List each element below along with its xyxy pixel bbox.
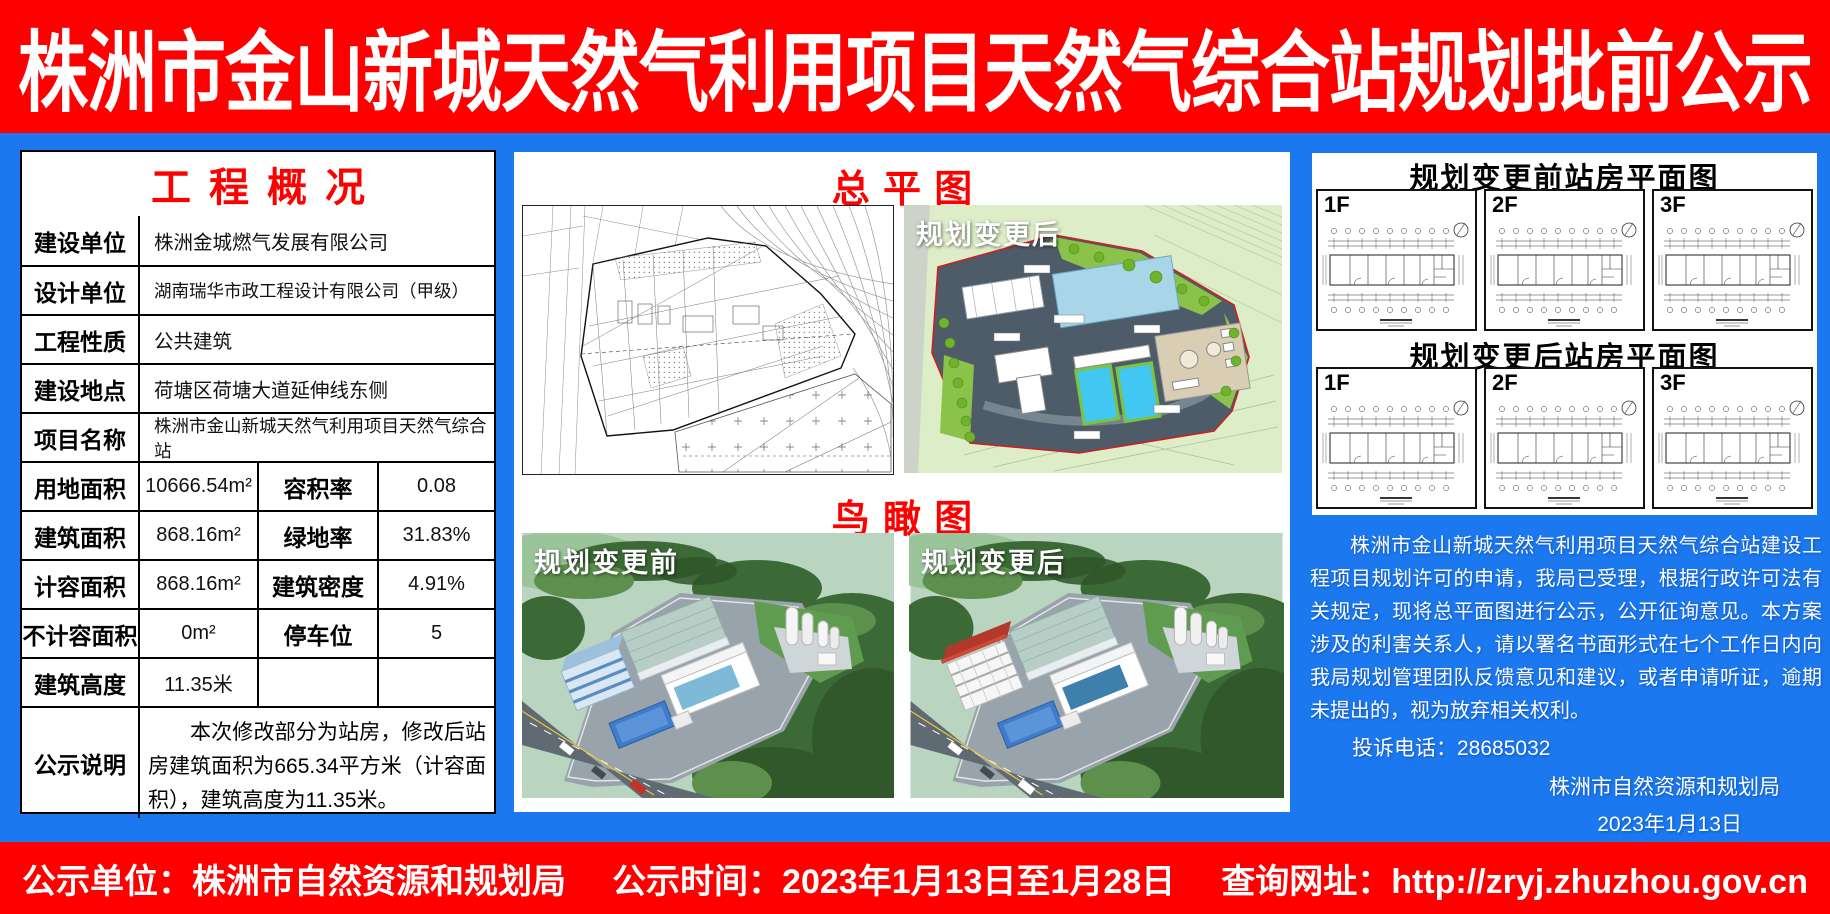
aerial-before-label: 规划变更前 [534, 541, 679, 580]
field-label [257, 659, 377, 706]
field-label: 绿地率 [257, 512, 377, 559]
field-value [377, 659, 494, 706]
footer-unit: 公示单位：株洲市自然资源和规划局 [22, 854, 566, 903]
footer-url: 查询网址：http://zryj.zhuzhou.gov.cn [1221, 854, 1808, 903]
plans-panel: 总平图 [514, 152, 1290, 812]
field-label: 公示说明 [22, 708, 138, 818]
floor-level-label: 1F [1324, 370, 1350, 396]
page-title: 株洲市金山新城天然气利用项目天然气综合站规划批前公示 [18, 3, 1812, 130]
field-value: 公共建筑 [138, 316, 494, 363]
aerial-before-image: 规划变更前 [522, 533, 894, 798]
table-row: 工程性质 公共建筑 [22, 314, 494, 363]
floor-plan-drawing [1654, 395, 1811, 507]
floor-level-label: 2F [1492, 192, 1518, 218]
table-row-note: 公示说明 本次修改部分为站房，修改后站房建筑面积为665.34平方米（计容面积）… [22, 706, 494, 818]
table-row: 建筑高度 11.35米 [22, 657, 494, 706]
floor-level-label: 1F [1324, 192, 1350, 218]
footer-time: 公示时间：2023年1月13日至1月28日 [612, 854, 1175, 903]
field-value: 31.83% [377, 512, 494, 559]
notice-paragraph: 株洲市金山新城天然气利用项目天然气综合站建设工程项目规划许可的申请，我局已受理，… [1310, 530, 1822, 728]
floor-plan-drawing [1318, 217, 1475, 329]
floor-level-label: 3F [1660, 192, 1686, 218]
field-label: 工程性质 [22, 316, 138, 363]
table-row: 不计容面积 0m² 停车位 5 [22, 608, 494, 657]
floor-plan-box: 2F [1484, 189, 1645, 331]
table-row: 项目名称 株洲市金山新城天然气利用项目天然气综合站 [22, 412, 494, 461]
field-value: 868.16m² [138, 512, 257, 559]
overview-table: 建设单位 株洲金城燃气发展有限公司 设计单位 湖南瑞华市政工程设计有限公司（甲级… [22, 216, 494, 812]
field-value: 10666.54m² [138, 463, 257, 510]
floor-plan-row-after: 1F 2F 3F [1312, 367, 1817, 509]
header-banner: 株洲市金山新城天然气利用项目天然气综合站规划批前公示 [0, 0, 1830, 133]
table-row: 用地面积 10666.54m² 容积率 0.08 [22, 461, 494, 510]
field-value: 株洲金城燃气发展有限公司 [138, 216, 494, 265]
floor-level-label: 2F [1492, 370, 1518, 396]
field-value: 868.16m² [138, 561, 257, 608]
table-row: 建筑面积 868.16m² 绿地率 31.83% [22, 510, 494, 559]
field-label: 设计单位 [22, 267, 138, 314]
floor-plan-drawing [1486, 217, 1643, 329]
notice-date: 2023年1月13日 [1310, 808, 1822, 838]
note-text: 本次修改部分为站房，修改后站房建筑面积为665.34平方米（计容面积），建筑高度… [138, 708, 494, 818]
field-label: 建筑面积 [22, 512, 138, 559]
overview-title: 工程概况 [22, 152, 494, 216]
floor-plan-box: 1F [1316, 367, 1477, 509]
floor-plan-drawing [1654, 217, 1811, 329]
field-label: 不计容面积 [22, 610, 138, 657]
field-value: 湖南瑞华市政工程设计有限公司（甲级） [138, 267, 494, 314]
field-label: 用地面积 [22, 463, 138, 510]
field-value: 11.35米 [138, 659, 257, 706]
field-label: 建设地点 [22, 365, 138, 412]
site-plan-cad-image [522, 205, 894, 475]
field-label: 建筑密度 [257, 561, 377, 608]
floor-plan-box: 1F [1316, 189, 1477, 331]
aerial-after-label: 规划变更后 [921, 541, 1066, 580]
table-row: 建设单位 株洲金城燃气发展有限公司 [22, 216, 494, 265]
field-value: 株洲市金山新城天然气利用项目天然气综合站 [138, 414, 494, 461]
site-plan-after-label: 规划变更后 [916, 213, 1061, 252]
field-value: 5 [377, 610, 494, 657]
table-row: 设计单位 湖南瑞华市政工程设计有限公司（甲级） [22, 265, 494, 314]
field-label: 项目名称 [22, 414, 138, 461]
cad-drawing [523, 206, 893, 474]
table-row: 计容面积 868.16m² 建筑密度 4.91% [22, 559, 494, 608]
floor-plans-panel: 规划变更前站房平面图 1F 2F 3F 规划变更后站房平面图 1F 2F [1312, 153, 1817, 515]
project-overview-panel: 工程概况 建设单位 株洲金城燃气发展有限公司 设计单位 湖南瑞华市政工程设计有限… [20, 150, 496, 814]
field-value: 荷塘区荷塘大道延伸线东侧 [138, 365, 494, 412]
floor-plan-box: 3F [1652, 189, 1813, 331]
floor-plan-drawing [1486, 395, 1643, 507]
notice-poster: 株洲市金山新城天然气利用项目天然气综合站规划批前公示 工程概况 建设单位 株洲金… [0, 0, 1830, 914]
floor-plan-row-before: 1F 2F 3F [1312, 189, 1817, 331]
table-row: 建设地点 荷塘区荷塘大道延伸线东侧 [22, 363, 494, 412]
site-plan-after-image: 规划变更后 [904, 205, 1282, 473]
field-value: 4.91% [377, 561, 494, 608]
floor-level-label: 3F [1660, 370, 1686, 396]
aerial-after-image: 规划变更后 [909, 533, 1284, 798]
footer-banner: 公示单位：株洲市自然资源和规划局 公示时间：2023年1月13日至1月28日 查… [0, 842, 1830, 914]
complaint-phone: 投诉电话：28685032 [1310, 732, 1822, 762]
floor-plan-box: 3F [1652, 367, 1813, 509]
field-value: 0.08 [377, 463, 494, 510]
field-label: 计容面积 [22, 561, 138, 608]
field-label: 容积率 [257, 463, 377, 510]
field-label: 停车位 [257, 610, 377, 657]
field-value: 0m² [138, 610, 257, 657]
field-label: 建设单位 [22, 216, 138, 265]
field-label: 建筑高度 [22, 659, 138, 706]
floor-plan-box: 2F [1484, 367, 1645, 509]
issuing-agency: 株洲市自然资源和规划局 [1310, 771, 1822, 801]
floor-plan-drawing [1318, 395, 1475, 507]
notice-text-block: 株洲市金山新城天然气利用项目天然气综合站建设工程项目规划许可的申请，我局已受理，… [1310, 530, 1822, 838]
